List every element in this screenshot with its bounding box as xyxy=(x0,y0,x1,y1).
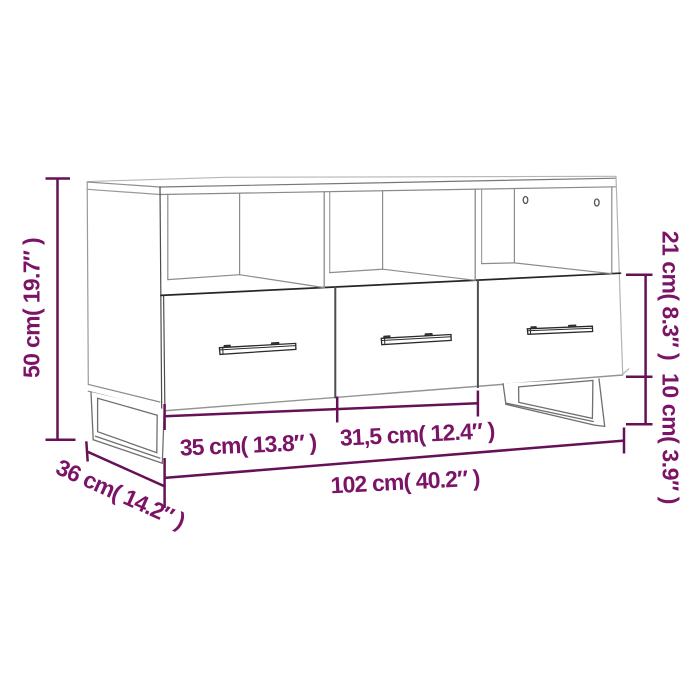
svg-text:21 cm( 8.3″ ): 21 cm( 8.3″ ) xyxy=(657,231,683,360)
svg-text:10 cm( 3.9″ ): 10 cm( 3.9″ ) xyxy=(657,373,683,504)
svg-text:50 cm( 19.7″ ): 50 cm( 19.7″ ) xyxy=(19,238,45,378)
